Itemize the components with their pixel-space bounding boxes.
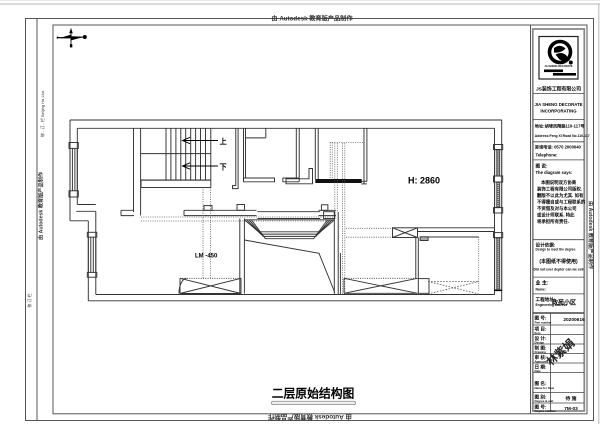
svg-text:Degree number: Degree number — [535, 409, 557, 413]
svg-text:Name for float: Name for float — [535, 386, 554, 390]
svg-text:由 Autodesk 教育版产品制作: 由 Autodesk 教育版产品制作 — [271, 15, 353, 23]
svg-text:咨询电话: 0570 2000040: 咨询电话: 0570 2000040 — [535, 143, 582, 150]
svg-text:装饰工程有限公司版权.: 装饰工程有限公司版权. — [537, 186, 582, 193]
svg-text:上: 上 — [220, 137, 227, 146]
svg-text:修 - 订 - 栏 Beijing Ha Lha: 修 - 订 - 栏 Beijing Ha Lha — [39, 90, 45, 137]
svg-text:本图说明双方协商: 本图说明双方协商 — [541, 179, 577, 186]
svg-text:Drawing: Drawing — [535, 350, 547, 354]
svg-text:(本图纸不得使用): (本图纸不得使用) — [539, 258, 578, 265]
svg-text:7M-03: 7M-03 — [564, 406, 578, 412]
svg-text:Did not ever deptor can we sel: Did not ever deptor can we sell — [534, 268, 584, 272]
svg-text:INCORPORATING: INCORPORATING — [540, 109, 577, 114]
svg-text:翻版不以此为尤其. 如有: 翻版不以此为尤其. 如有 — [537, 192, 584, 199]
svg-text:Degree & unit: Degree & unit — [535, 399, 554, 403]
svg-text:Part number: Part number — [535, 321, 553, 325]
svg-text:下: 下 — [220, 163, 227, 172]
svg-text:Name:: Name: — [536, 288, 546, 292]
svg-text:由 Autodesk 教育版产品制作: 由 Autodesk 教育版产品制作 — [587, 201, 595, 270]
svg-text:LM -450: LM -450 — [195, 254, 218, 260]
svg-text:不得擅自或与工程联系的: 不得擅自或与工程联系的 — [537, 199, 586, 206]
svg-text:修 订 栏: 修 订 栏 — [26, 293, 32, 307]
svg-text:待 施: 待 施 — [565, 395, 577, 402]
svg-text:不资借及对与本公司: 不资借及对与本公司 — [537, 205, 577, 212]
svg-text:20200616: 20200616 — [563, 317, 585, 323]
svg-text:地址:胡埭凤翔路110-117号: 地址:胡埭凤翔路110-117号 — [535, 122, 585, 129]
svg-text:或设计师联系. 特此: 或设计师联系. 特此 — [537, 212, 575, 219]
svg-text:由 Autodesk 教育版产品制作: 由 Autodesk 教育版产品制作 — [267, 413, 351, 422]
svg-text:由 Autodesk 教育版产品制作: 由 Autodesk 教育版产品制作 — [37, 171, 45, 240]
svg-text:Date: Date — [535, 369, 542, 373]
svg-text:图 说:: 图 说: — [536, 163, 548, 170]
svg-text:Item: Item — [535, 331, 541, 335]
svg-text:二层原始结构图: 二层原始结构图 — [272, 387, 355, 401]
svg-text:JS装饰工程有限公司: JS装饰工程有限公司 — [536, 86, 581, 93]
svg-text:业 主:: 业 主: — [536, 280, 549, 287]
svg-text:The diagram says:: The diagram says: — [536, 170, 573, 175]
svg-text:Design: Design — [535, 340, 545, 344]
svg-text:Design to meet the degree: Design to meet the degree — [536, 248, 576, 252]
svg-text:JIA SHENG DECORATE: JIA SHENG DECORATE — [535, 102, 583, 107]
svg-text:将承担所有责任.: 将承担所有责任. — [537, 218, 569, 225]
svg-text:H: 2860: H: 2860 — [408, 176, 440, 186]
svg-text:政苑小区: 政苑小区 — [552, 299, 576, 307]
svg-text:Address:Feng XI Road No.110-: Address:Feng XI Road No.110-117 — [535, 134, 590, 138]
svg-text:Telephone:: Telephone: — [536, 153, 558, 158]
svg-text:JA SHENG DECORATE: JA SHENG DECORATE — [544, 64, 573, 68]
